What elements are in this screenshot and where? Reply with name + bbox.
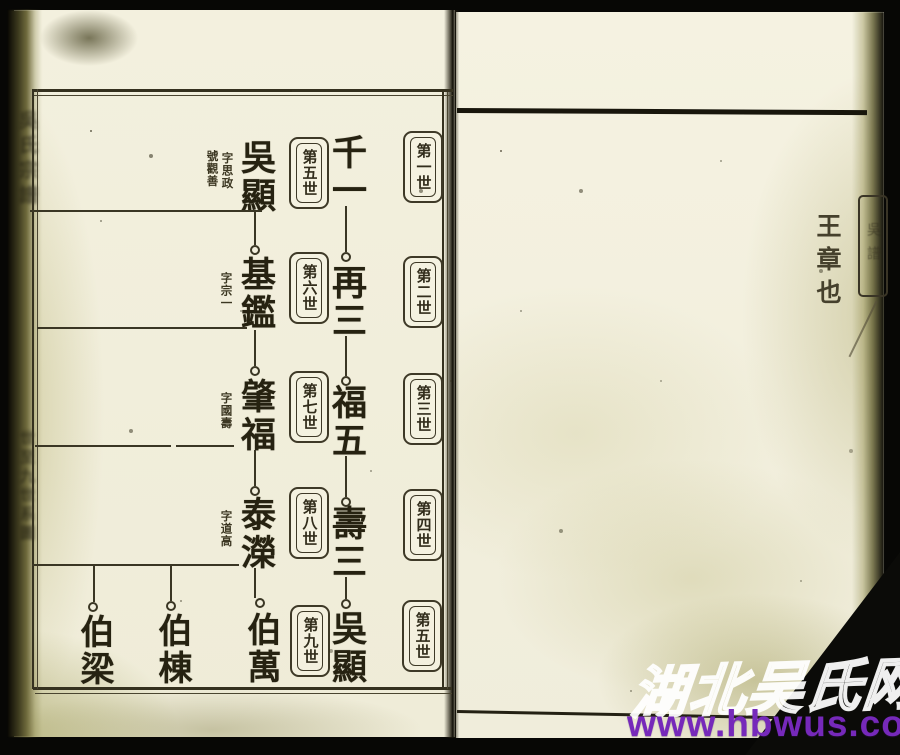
generation-label-box: 第七世 xyxy=(289,371,329,443)
generation-label: 第二世 xyxy=(410,262,436,322)
descent-line xyxy=(93,566,95,602)
name-annotation-zi: 字國壽 xyxy=(220,392,232,430)
paper-speckles xyxy=(500,150,502,152)
generation-label: 第六世 xyxy=(296,258,322,318)
descent-line xyxy=(254,450,256,486)
ancestor-name: 再三 xyxy=(329,264,364,340)
left-page-right-border-inner xyxy=(447,92,448,689)
generation-label: 第八世 xyxy=(296,493,322,553)
generation-label: 第五世 xyxy=(296,143,322,203)
left-page-left-border xyxy=(32,89,34,689)
descent-line xyxy=(345,456,347,497)
ancestor-name: 壽三 xyxy=(329,505,364,581)
left-page-left-border-inner xyxy=(37,89,38,689)
right-page xyxy=(456,12,884,738)
descent-line xyxy=(254,568,256,598)
generation-label-box: 第八世 xyxy=(289,487,329,559)
generation-label: 第五世 xyxy=(409,606,435,666)
generation-label: 第一世 xyxy=(410,137,436,197)
generation-label: 第三世 xyxy=(410,379,436,439)
ancestor-name: 千一 xyxy=(329,134,364,210)
name-annotation-zi: 字道高 xyxy=(220,510,232,548)
generation-label: 第四世 xyxy=(410,495,436,555)
node-circle xyxy=(166,601,176,611)
sibling-line xyxy=(30,210,262,212)
node-circle xyxy=(341,376,351,386)
descendant-name: 伯萬 xyxy=(244,612,278,686)
node-circle xyxy=(250,366,260,376)
sibling-line xyxy=(37,327,247,329)
node-circle xyxy=(250,486,260,496)
ancestor-name: 吳顯 xyxy=(238,139,273,215)
descent-line xyxy=(345,336,347,376)
descent-line xyxy=(345,577,347,599)
descent-line xyxy=(254,330,256,366)
sibling-line xyxy=(35,445,171,447)
descent-line xyxy=(345,206,347,252)
name-annotation-zi: 字宗一 xyxy=(220,272,232,310)
node-circle xyxy=(341,497,351,507)
generation-label-box: 第三世 xyxy=(403,373,443,445)
generation-label-box: 第五世 xyxy=(402,600,442,672)
caption-text: 王章也 xyxy=(815,213,840,312)
ancestor-name: 基鑑 xyxy=(238,256,273,332)
generation-label-box: 第九世 xyxy=(290,605,330,677)
descendant-name: 伯梁 xyxy=(77,614,111,688)
node-circle xyxy=(341,599,351,609)
generation-label-box: 第二世 xyxy=(403,256,443,328)
edge-label-fragment: 吳譜 xyxy=(866,222,880,270)
generation-label: 第九世 xyxy=(297,611,323,671)
node-circle xyxy=(255,598,265,608)
node-circle xyxy=(341,252,351,262)
ancestor-name: 肇福 xyxy=(238,378,273,454)
edge-label-box: 吳譜 xyxy=(858,195,888,297)
generation-label-box: 第四世 xyxy=(403,489,443,561)
node-circle xyxy=(88,602,98,612)
descent-line xyxy=(254,212,256,245)
name-annotation-zi: 字思政 xyxy=(221,152,233,190)
generation-label-box: 第一世 xyxy=(403,131,443,203)
ancestor-name: 吳顯 xyxy=(329,610,364,686)
left-page-top-rule xyxy=(33,89,453,92)
name-annotation-hao: 號觀善 xyxy=(206,150,218,188)
paper-speckles xyxy=(90,130,92,132)
ancestor-name: 福五 xyxy=(329,384,364,460)
watermark-url: www.hbwus.com xyxy=(627,703,900,745)
node-circle xyxy=(250,245,260,255)
sibling-line xyxy=(176,445,234,447)
generation-label-box: 第六世 xyxy=(289,252,329,324)
generation-label-box: 第五世 xyxy=(289,137,329,209)
generation-label: 第七世 xyxy=(296,377,322,437)
ancestor-name: 泰濚 xyxy=(238,496,273,572)
sibling-line xyxy=(32,564,239,566)
descent-line xyxy=(170,566,172,601)
left-page-top-rule-inner xyxy=(33,95,453,96)
descendant-name: 伯棟 xyxy=(155,613,189,687)
left-page-bottom-rule-inner xyxy=(35,693,452,694)
